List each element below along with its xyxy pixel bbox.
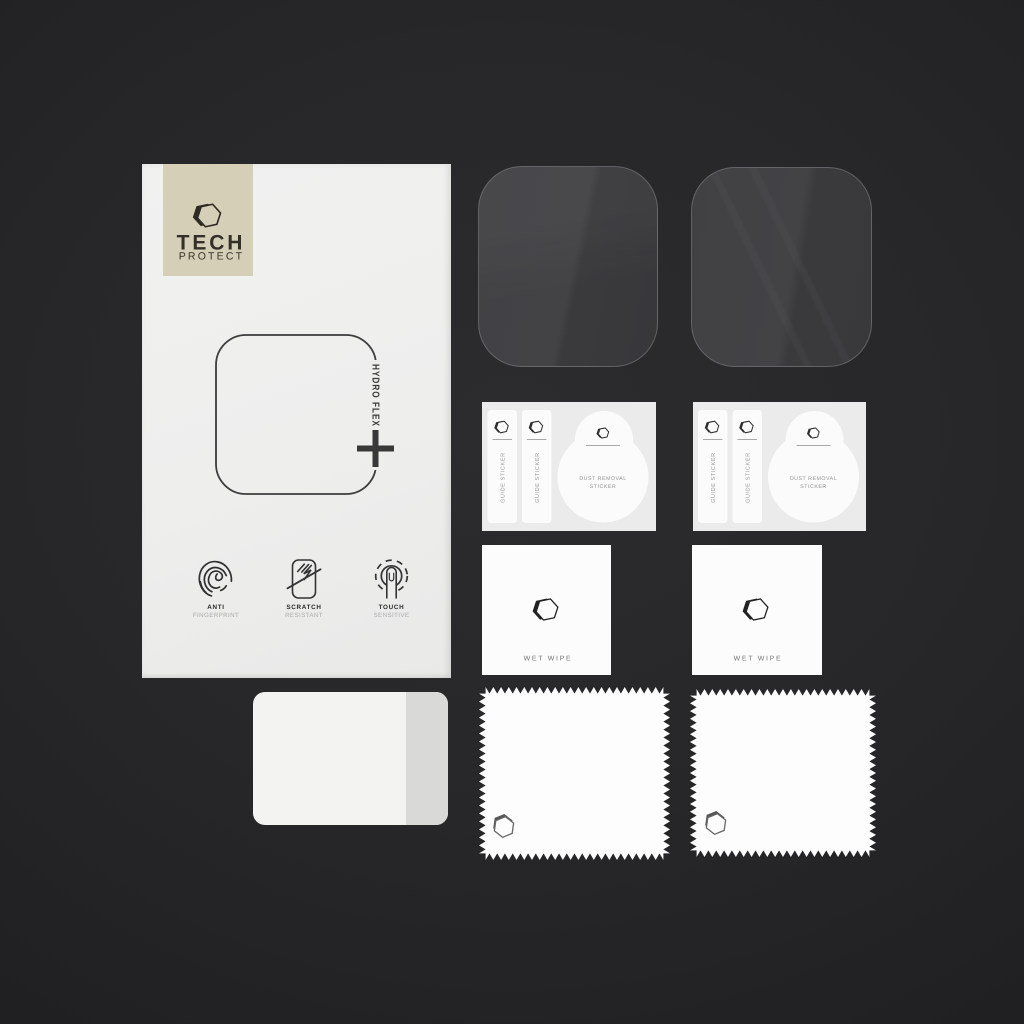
svg-text:DUST REMOVAL: DUST REMOVAL <box>579 476 626 482</box>
svg-text:GUIDE STICKER: GUIDE STICKER <box>711 452 717 503</box>
svg-text:GUIDE STICKER: GUIDE STICKER <box>501 452 507 503</box>
svg-text:STICKER: STICKER <box>800 484 826 490</box>
svg-text:WET WIPE: WET WIPE <box>734 656 783 663</box>
svg-text:DUST REMOVAL: DUST REMOVAL <box>790 476 837 482</box>
svg-text:GUIDE STICKER: GUIDE STICKER <box>745 452 751 503</box>
svg-text:WET WIPE: WET WIPE <box>524 656 573 663</box>
svg-text:STICKER: STICKER <box>590 484 616 490</box>
svg-text:GUIDE STICKER: GUIDE STICKER <box>535 452 541 503</box>
